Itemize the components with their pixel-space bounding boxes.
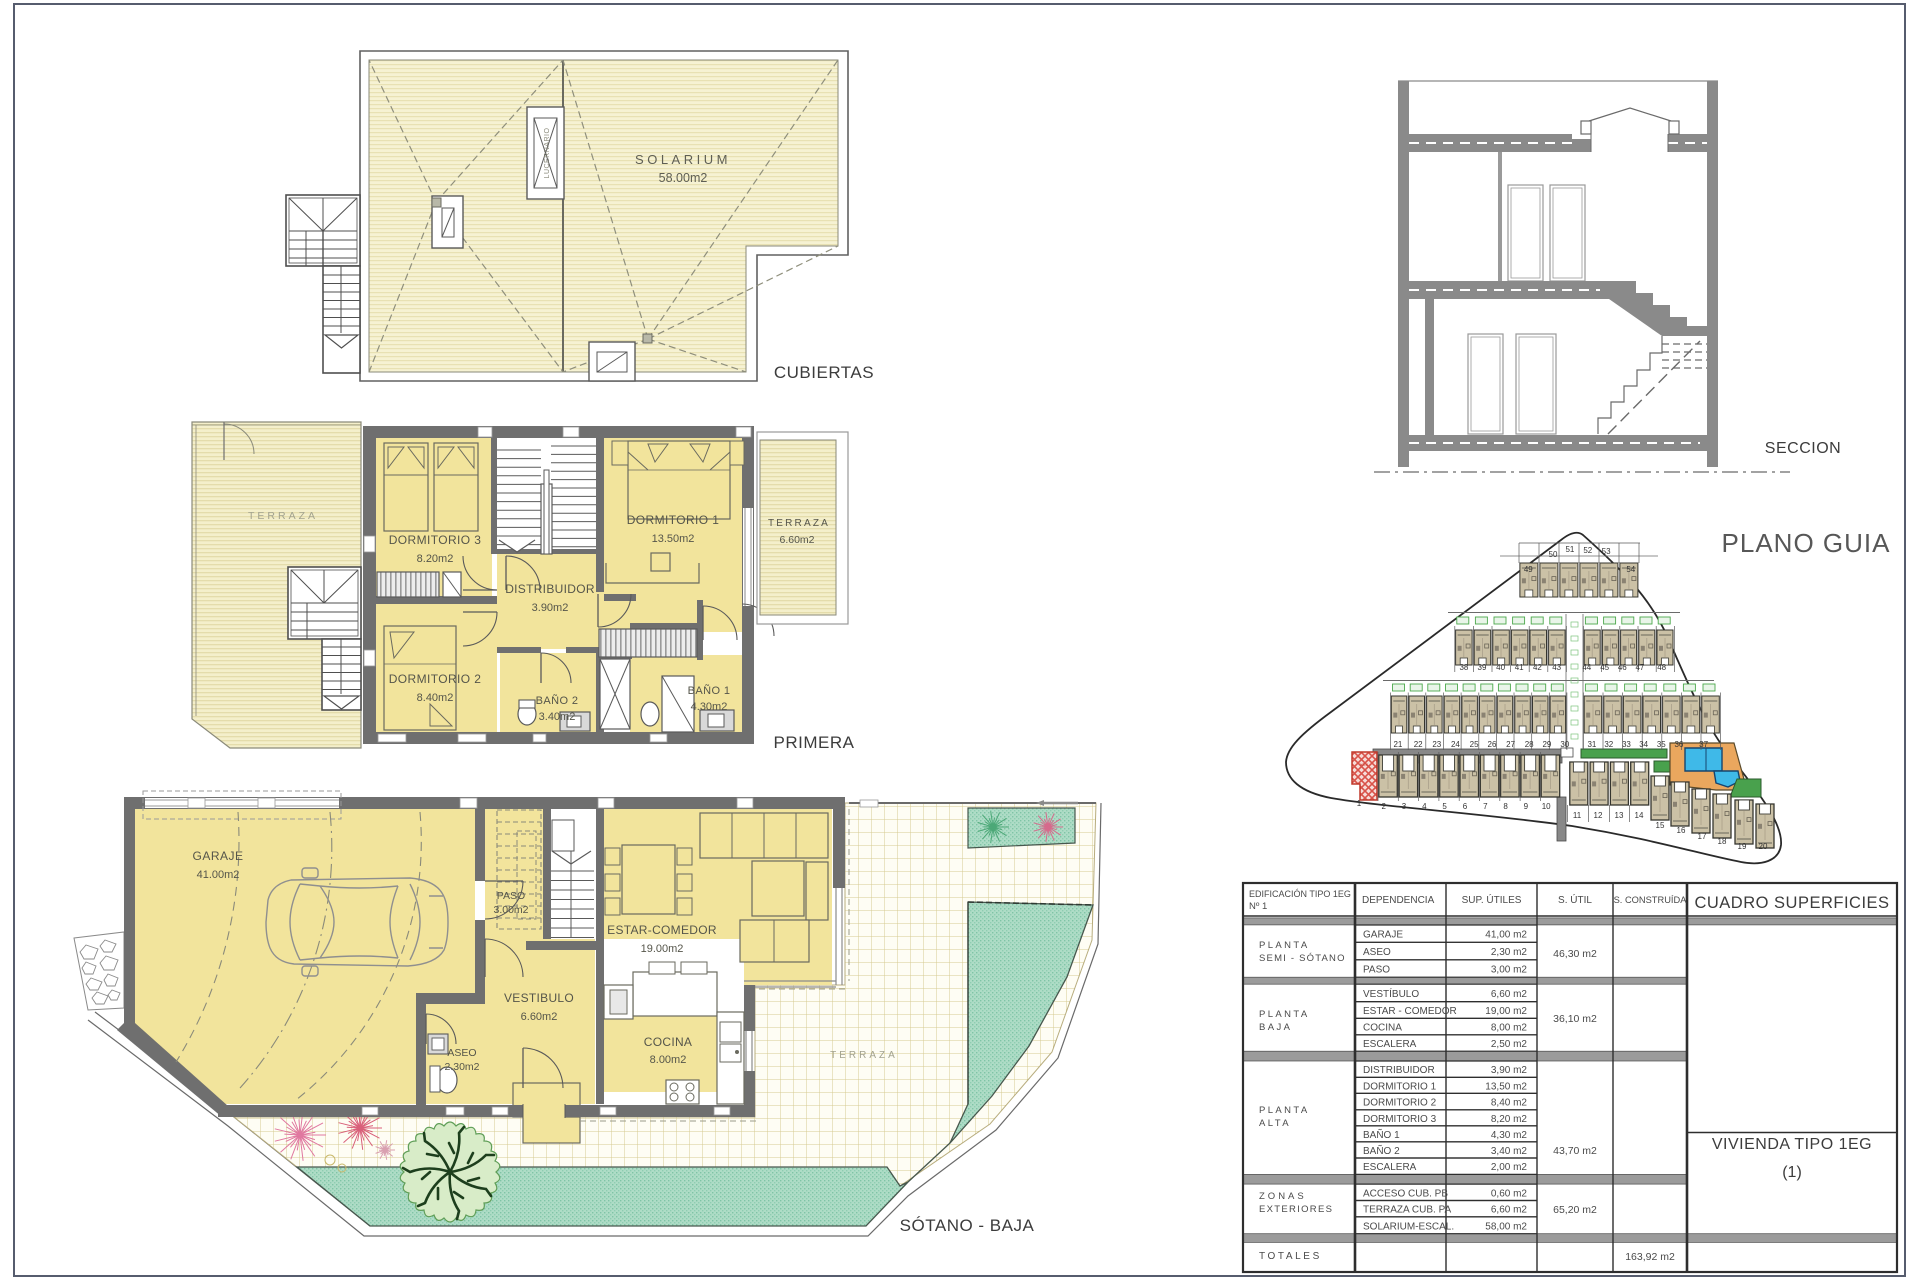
svg-text:2: 2 [1381, 802, 1386, 811]
svg-text:31: 31 [1587, 740, 1596, 749]
svg-text:22: 22 [1414, 740, 1423, 749]
svg-text:41.00m2: 41.00m2 [197, 869, 240, 881]
svg-text:6: 6 [1463, 802, 1468, 811]
svg-text:S. ÚTIL: S. ÚTIL [1558, 893, 1592, 906]
svg-text:DORMITORIO 2: DORMITORIO 2 [389, 672, 482, 686]
svg-text:ESTAR-COMEDOR: ESTAR-COMEDOR [607, 923, 717, 937]
svg-text:PASO: PASO [497, 890, 525, 902]
svg-text:3.00m2: 3.00m2 [493, 904, 528, 916]
svg-text:VESTIBULO: VESTIBULO [504, 991, 574, 1005]
svg-text:ESTAR - COMEDOR: ESTAR - COMEDOR [1363, 1006, 1457, 1017]
svg-text:21: 21 [1393, 740, 1402, 749]
svg-text:6,60 m2: 6,60 m2 [1491, 989, 1528, 1000]
svg-text:VESTÍBULO: VESTÍBULO [1363, 987, 1419, 1000]
svg-text:3,90 m2: 3,90 m2 [1491, 1065, 1528, 1076]
svg-text:SEMI - SÓTANO: SEMI - SÓTANO [1259, 953, 1346, 964]
svg-text:TERRAZA: TERRAZA [248, 510, 318, 522]
svg-text:DISTRIBUIDOR: DISTRIBUIDOR [505, 582, 595, 596]
svg-text:17: 17 [1698, 832, 1707, 841]
svg-text:BAJA: BAJA [1259, 1022, 1292, 1033]
svg-text:7: 7 [1483, 802, 1488, 811]
svg-text:LUCERNARIO: LUCERNARIO [544, 128, 551, 179]
svg-text:6,60 m2: 6,60 m2 [1491, 1205, 1528, 1216]
svg-text:51: 51 [1565, 545, 1574, 554]
svg-text:32: 32 [1604, 740, 1613, 749]
svg-text:PLANTA: PLANTA [1259, 1009, 1310, 1020]
svg-text:8,00 m2: 8,00 m2 [1491, 1023, 1528, 1034]
svg-text:35: 35 [1657, 740, 1666, 749]
svg-text:50: 50 [1549, 550, 1558, 559]
svg-text:36,10 m2: 36,10 m2 [1553, 1013, 1597, 1025]
svg-text:S. CONSTRUÍDA: S. CONSTRUÍDA [1614, 895, 1688, 905]
svg-text:COCINA: COCINA [1363, 1023, 1402, 1034]
svg-text:54: 54 [1626, 565, 1635, 574]
svg-text:3.90m2: 3.90m2 [532, 602, 569, 614]
svg-text:163,92 m2: 163,92 m2 [1625, 1251, 1675, 1263]
svg-text:COCINA: COCINA [644, 1035, 692, 1049]
svg-text:XXX: XXX [1360, 762, 1368, 767]
svg-text:20: 20 [1759, 842, 1768, 851]
svg-text:DORMITORIO 3: DORMITORIO 3 [389, 533, 482, 547]
svg-text:52: 52 [1583, 546, 1592, 555]
svg-text:33: 33 [1622, 740, 1631, 749]
svg-text:58,00 m2: 58,00 m2 [1485, 1221, 1527, 1232]
svg-text:2,50 m2: 2,50 m2 [1491, 1039, 1528, 1050]
svg-text:DORMITORIO 1: DORMITORIO 1 [1363, 1081, 1437, 1092]
svg-text:23: 23 [1432, 740, 1441, 749]
svg-text:SÓTANO - BAJA: SÓTANO - BAJA [900, 1216, 1035, 1235]
svg-text:BAÑO 2: BAÑO 2 [1363, 1144, 1400, 1157]
svg-text:53: 53 [1602, 547, 1611, 556]
svg-text:GARAJE: GARAJE [1363, 930, 1403, 941]
svg-text:43,70 m2: 43,70 m2 [1553, 1145, 1597, 1157]
svg-text:ACCESO CUB. PB: ACCESO CUB. PB [1363, 1188, 1448, 1199]
svg-text:TERRAZA: TERRAZA [830, 1050, 898, 1061]
svg-text:18: 18 [1718, 837, 1727, 846]
svg-text:46,30 m2: 46,30 m2 [1553, 948, 1597, 960]
svg-text:4: 4 [1422, 802, 1427, 811]
svg-text:GARAJE: GARAJE [192, 849, 243, 863]
svg-text:SOLARIUM: SOLARIUM [635, 152, 731, 167]
svg-text:TERRAZA CUB. PA: TERRAZA CUB. PA [1363, 1205, 1451, 1216]
svg-text:ZONAS: ZONAS [1259, 1191, 1307, 1202]
svg-text:58.00m2: 58.00m2 [659, 171, 708, 185]
svg-text:46: 46 [1618, 663, 1627, 672]
svg-text:14: 14 [1635, 811, 1644, 820]
svg-text:5: 5 [1442, 802, 1447, 811]
svg-text:15: 15 [1656, 821, 1665, 830]
svg-text:3: 3 [1402, 802, 1407, 811]
svg-text:45: 45 [1600, 663, 1609, 672]
svg-text:4,30 m2: 4,30 m2 [1491, 1130, 1528, 1141]
svg-text:PRIMERA: PRIMERA [774, 733, 855, 752]
svg-text:ASEO: ASEO [447, 1047, 476, 1059]
svg-text:36: 36 [1674, 740, 1683, 749]
svg-text:3,40 m2: 3,40 m2 [1491, 1146, 1528, 1157]
svg-text:28: 28 [1525, 740, 1534, 749]
svg-text:CUBIERTAS: CUBIERTAS [774, 363, 874, 382]
svg-text:ESCALERA: ESCALERA [1363, 1162, 1417, 1173]
svg-text:34: 34 [1639, 740, 1648, 749]
svg-text:6.60m2: 6.60m2 [779, 534, 814, 546]
svg-text:2,00 m2: 2,00 m2 [1491, 1162, 1528, 1173]
svg-text:8.20m2: 8.20m2 [417, 553, 454, 565]
svg-text:DORMITORIO 1: DORMITORIO 1 [627, 513, 720, 527]
svg-text:SECCION: SECCION [1765, 440, 1841, 457]
svg-text:DORMITORIO 3: DORMITORIO 3 [1363, 1114, 1437, 1125]
svg-text:8,40 m2: 8,40 m2 [1491, 1098, 1528, 1109]
svg-text:2,30 m2: 2,30 m2 [1491, 947, 1528, 958]
svg-text:ASEO: ASEO [1363, 947, 1391, 958]
svg-text:47: 47 [1635, 663, 1644, 672]
svg-text:PLANO GUIA: PLANO GUIA [1722, 528, 1891, 558]
svg-text:13.50m2: 13.50m2 [652, 533, 695, 545]
svg-text:Nº 1: Nº 1 [1249, 901, 1267, 912]
svg-text:48: 48 [1657, 663, 1666, 672]
svg-text:ALTA: ALTA [1259, 1118, 1291, 1129]
svg-text:65,20 m2: 65,20 m2 [1553, 1204, 1597, 1216]
svg-text:9: 9 [1524, 802, 1529, 811]
svg-text:4.30m2: 4.30m2 [691, 701, 728, 713]
svg-text:41,00 m2: 41,00 m2 [1485, 930, 1527, 941]
svg-text:DEPENDENCIA: DEPENDENCIA [1362, 895, 1435, 906]
svg-text:24: 24 [1451, 740, 1460, 749]
svg-text:11: 11 [1573, 811, 1582, 820]
svg-text:CUADRO SUPERFICIES: CUADRO SUPERFICIES [1694, 894, 1889, 912]
svg-text:VIVIENDA TIPO 1EG: VIVIENDA TIPO 1EG [1712, 1136, 1872, 1153]
svg-text:49: 49 [1524, 565, 1533, 574]
svg-text:40: 40 [1496, 663, 1505, 672]
svg-text:16: 16 [1677, 826, 1686, 835]
svg-text:2.30m2: 2.30m2 [444, 1061, 479, 1073]
svg-text:42: 42 [1533, 663, 1542, 672]
svg-text:BAÑO 2: BAÑO 2 [536, 694, 579, 707]
svg-text:19: 19 [1738, 842, 1747, 851]
svg-text:TERRAZA: TERRAZA [768, 518, 830, 529]
svg-text:SUP. ÚTILES: SUP. ÚTILES [1462, 893, 1522, 906]
svg-text:37: 37 [1699, 740, 1708, 749]
svg-text:44: 44 [1582, 663, 1591, 672]
svg-text:0,60 m2: 0,60 m2 [1491, 1188, 1528, 1199]
svg-text:PASO: PASO [1363, 965, 1390, 976]
svg-text:38: 38 [1459, 663, 1468, 672]
svg-text:(1): (1) [1782, 1164, 1802, 1181]
svg-text:13,50 m2: 13,50 m2 [1485, 1081, 1527, 1092]
svg-text:DISTRIBUIDOR: DISTRIBUIDOR [1363, 1065, 1435, 1076]
svg-text:19.00m2: 19.00m2 [641, 943, 684, 955]
svg-text:26: 26 [1488, 740, 1497, 749]
svg-text:BAÑO 1: BAÑO 1 [688, 684, 731, 697]
svg-text:EDIFICACIÓN TIPO 1EG: EDIFICACIÓN TIPO 1EG [1249, 889, 1351, 899]
svg-text:PLANTA: PLANTA [1259, 1105, 1310, 1116]
svg-text:6.60m2: 6.60m2 [521, 1011, 558, 1023]
svg-text:13: 13 [1615, 811, 1624, 820]
svg-text:8.40m2: 8.40m2 [417, 692, 454, 704]
svg-text:19,00 m2: 19,00 m2 [1485, 1006, 1527, 1017]
svg-text:1: 1 [1357, 799, 1362, 808]
svg-text:TOTALES: TOTALES [1259, 1251, 1322, 1262]
svg-text:25: 25 [1470, 740, 1479, 749]
svg-text:PLANTA: PLANTA [1259, 940, 1310, 951]
svg-text:8.00m2: 8.00m2 [650, 1054, 687, 1066]
svg-text:43: 43 [1552, 663, 1561, 672]
svg-text:DORMITORIO 2: DORMITORIO 2 [1363, 1098, 1437, 1109]
svg-text:27: 27 [1506, 740, 1515, 749]
svg-text:8,20 m2: 8,20 m2 [1491, 1114, 1528, 1125]
svg-text:EXTERIORES: EXTERIORES [1259, 1204, 1333, 1215]
svg-text:ESCALERA: ESCALERA [1363, 1039, 1417, 1050]
svg-text:3.40m2: 3.40m2 [539, 711, 576, 723]
svg-text:8: 8 [1503, 802, 1508, 811]
svg-text:10: 10 [1542, 802, 1551, 811]
svg-text:39: 39 [1478, 663, 1487, 672]
svg-text:12: 12 [1594, 811, 1603, 820]
svg-text:30: 30 [1560, 740, 1569, 749]
svg-text:SOLARIUM-ESCAL.: SOLARIUM-ESCAL. [1363, 1221, 1454, 1232]
svg-text:BAÑO 1: BAÑO 1 [1363, 1128, 1400, 1141]
svg-text:29: 29 [1542, 740, 1551, 749]
svg-text:3,00 m2: 3,00 m2 [1491, 965, 1528, 976]
svg-text:41: 41 [1515, 663, 1524, 672]
